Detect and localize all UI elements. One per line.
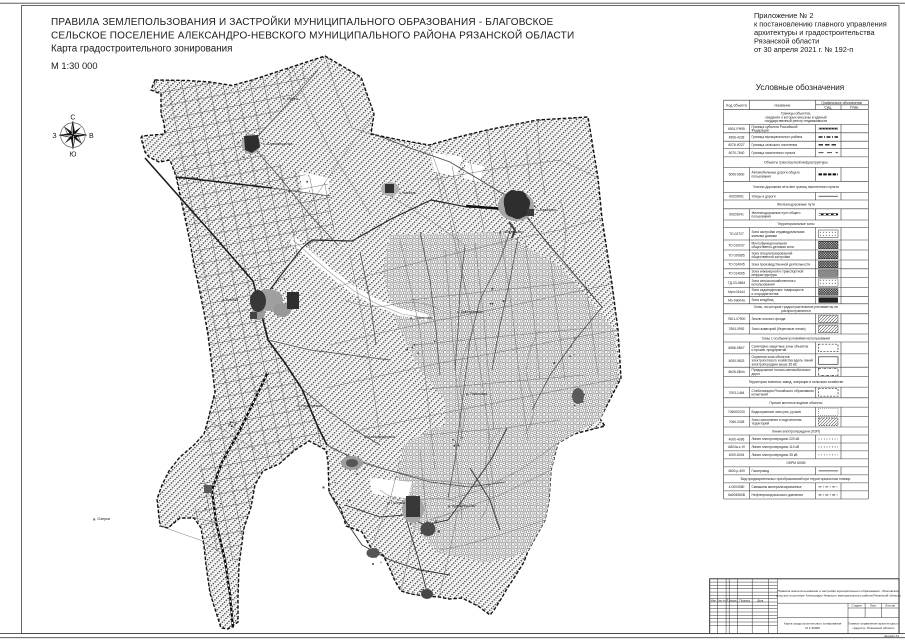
svg-text:ТО 014045: ТО 014045 bbox=[728, 263, 745, 267]
svg-text:п. Рубеж: п. Рубеж bbox=[283, 97, 299, 101]
svg-text:д. Зимарово: д. Зимарово bbox=[410, 316, 432, 320]
svg-text:6566-9В07: 6566-9В07 bbox=[728, 346, 744, 350]
svg-text:Граница муниципального района: Граница муниципального района bbox=[752, 135, 803, 139]
svg-text:использования: использования bbox=[752, 283, 775, 287]
svg-text:государственный реестр недвижи: государственный реестр недвижимости bbox=[765, 119, 828, 123]
svg-text:Вид предварительных преобразов: Вид предварительных преобразований при т… bbox=[741, 477, 852, 481]
svg-text:д. Павловка: д. Павловка bbox=[466, 392, 488, 396]
svg-text:Мрн-04444: Мрн-04444 bbox=[728, 290, 745, 294]
svg-text:Газопровод: Газопровод bbox=[752, 469, 770, 473]
svg-text:д. Гусевка: д. Гусевка bbox=[387, 501, 406, 505]
svg-text:Стадия: Стадия bbox=[851, 604, 862, 608]
svg-text:Сущ.: Сущ. bbox=[824, 105, 832, 109]
svg-text:с. Александровка: с. Александровка bbox=[364, 435, 396, 439]
svg-text:Железнодорожные пути: Железнодорожные пути bbox=[777, 203, 815, 207]
svg-text:ТО 014065: ТО 014065 bbox=[728, 271, 745, 275]
svg-text:ТО-02727: ТО-02727 bbox=[729, 232, 744, 236]
svg-text:Граница населенного пункта: Граница населенного пункта bbox=[752, 151, 796, 155]
svg-text:инфраструктуры: инфраструктуры bbox=[752, 273, 778, 277]
svg-text:Главное управление архитектуры: Главное управление архитектуры и bbox=[848, 622, 899, 626]
svg-text:Зоны с особыми условиями испол: Зоны с особыми условиями использования bbox=[762, 336, 831, 340]
svg-text:СЕЛЬСКОЕ ПОСЕЛЕНИЕ АЛЕКСАНДРО-: СЕЛЬСКОЕ ПОСЕЛЕНИЕ АЛЕКСАНДРО-НЕВСКОГО М… bbox=[51, 29, 574, 42]
svg-text:План.: План. bbox=[850, 105, 859, 109]
svg-text:Код объекта: Код объекта bbox=[726, 104, 747, 108]
svg-text:60203041: 60203041 bbox=[729, 213, 744, 217]
svg-text:Подпись: Подпись bbox=[739, 598, 750, 602]
svg-text:6000-9823: 6000-9823 bbox=[729, 359, 745, 363]
svg-text:6626-5В4н: 6626-5В4н bbox=[728, 370, 744, 374]
svg-text:Улично-дорожная сеть вне грани: Улично-дорожная сеть вне границ населенн… bbox=[753, 185, 839, 189]
svg-text:Ю: Ю bbox=[69, 152, 76, 159]
svg-text:6070-7640: 6070-7640 bbox=[729, 151, 745, 155]
svg-text:Придорожные полосы автомобильн: Придорожные полосы автомобильных bbox=[752, 368, 811, 372]
svg-text:7601-07900: 7601-07900 bbox=[728, 317, 746, 321]
svg-text:7003-1464: 7003-1464 bbox=[729, 391, 745, 395]
svg-text:Название: Название bbox=[774, 104, 790, 108]
svg-text:общественно-деловая зона: общественно-деловая зона bbox=[752, 245, 794, 249]
svg-text:4600-р-400: 4600-р-400 bbox=[728, 469, 745, 473]
svg-text:Объекты транспортной инфрастру: Объекты транспортной инфраструктуры bbox=[764, 161, 828, 165]
svg-text:пользования: пользования bbox=[752, 174, 772, 178]
svg-text:жилыми домами: жилыми домами bbox=[752, 234, 777, 238]
svg-text:и произв. предприятий: и произв. предприятий bbox=[752, 348, 787, 352]
svg-text:Кол.уч.: Кол.уч. bbox=[717, 598, 726, 602]
svg-text:4506-4228: 4506-4228 bbox=[729, 135, 745, 139]
svg-text:Правила землепользования и зас: Правила землепользования и застройки мун… bbox=[778, 589, 899, 593]
svg-text:Территориальные зоны: Территориальные зоны bbox=[777, 222, 815, 226]
svg-text:4-0004080: 4-0004080 bbox=[729, 485, 745, 489]
svg-text:д. Крещено-Гаи: д. Крещено-Гаи bbox=[448, 504, 476, 508]
svg-text:формат А1: формат А1 bbox=[884, 634, 900, 638]
svg-text:6076-Н227: 6076-Н227 bbox=[728, 143, 744, 147]
svg-text:Карта градостроительного зонир: Карта градостроительного зонирования bbox=[784, 622, 842, 626]
svg-text:с. Благое: с. Благое bbox=[222, 298, 238, 302]
svg-text:от 30 апреля 2021 г. № 192-п: от 30 апреля 2021 г. № 192-п bbox=[754, 45, 853, 54]
svg-text:пользования: пользования bbox=[752, 214, 772, 218]
svg-text:6501-РФ95: 6501-РФ95 bbox=[728, 127, 745, 131]
svg-text:7066-3428: 7066-3428 bbox=[729, 420, 745, 424]
svg-text:с. Канино: с. Канино bbox=[399, 191, 416, 195]
svg-text:Скважины минерализированные: Скважины минерализированные bbox=[752, 485, 802, 489]
svg-text:Зона производственной деятельн: Зона производственной деятельности bbox=[752, 263, 811, 267]
svg-text:Водоохранные зоны рек, ручьев: Водоохранные зоны рек, ручьев bbox=[752, 410, 802, 414]
svg-text:территорий: территорий bbox=[752, 422, 770, 426]
svg-text:ТО 010037: ТО 010037 bbox=[728, 243, 745, 247]
svg-text:дорог: дорог bbox=[752, 372, 761, 376]
svg-text:Листов: Листов bbox=[885, 604, 895, 608]
svg-text:М 1:30 000: М 1:30 000 bbox=[51, 61, 98, 71]
svg-text:ОКРМ 600М: ОКРМ 600М bbox=[786, 461, 805, 465]
svg-text:7604-0992: 7604-0992 bbox=[729, 327, 745, 331]
svg-text:Дата: Дата bbox=[757, 598, 763, 602]
svg-text:д. Озерки: д. Озерки bbox=[93, 517, 110, 521]
svg-text:Нефтепровод высокого давления: Нефтепровод высокого давления bbox=[752, 493, 804, 497]
svg-text:Федерации: Федерации bbox=[752, 129, 769, 133]
svg-text:градостр. Рязанской области: градостр. Рязанской области bbox=[853, 626, 895, 630]
svg-text:Лист: Лист bbox=[870, 604, 877, 608]
svg-text:4000-4096: 4000-4096 bbox=[729, 437, 745, 441]
svg-text:Графическое обозначение: Графическое обозначение bbox=[822, 101, 863, 105]
svg-text:5006-0600: 5006-0600 bbox=[729, 173, 745, 177]
svg-text:д. Ленинка: д. Ленинка bbox=[179, 176, 199, 180]
svg-text:М 1:30000: М 1:30000 bbox=[805, 626, 820, 630]
svg-text:4000-6004: 4000-6004 bbox=[729, 453, 745, 457]
svg-text:Зоны акваторий (береговые лини: Зоны акваторий (береговые линии) bbox=[752, 327, 806, 331]
svg-text:с. Николаевка: с. Николаевка bbox=[297, 404, 323, 408]
svg-text:Условные обозначения: Условные обозначения bbox=[756, 83, 844, 92]
svg-text:Улицы и дороги: Улицы и дороги bbox=[752, 194, 776, 198]
svg-text:Карта градостроительного зонир: Карта градостроительного зонирования bbox=[51, 44, 232, 55]
svg-text:З: З bbox=[52, 133, 56, 140]
svg-text:электропередачи выше 35 кВ: электропередачи выше 35 кВ bbox=[752, 362, 798, 366]
svg-text:Земли лесного фонда: Земли лесного фонда bbox=[752, 317, 786, 321]
svg-text:Изм.: Изм. bbox=[711, 598, 717, 602]
svg-text:и огородничества: и огородничества bbox=[752, 292, 779, 296]
svg-text:испытаний: испытаний bbox=[752, 393, 769, 397]
svg-text:Прочие местные водные объекты: Прочие местные водные объекты bbox=[769, 401, 823, 405]
svg-text:Линия электропередачи 110 кВ: Линия электропередачи 110 кВ bbox=[752, 445, 800, 449]
svg-text:Территории военных завод, опер: Территории военных завод, операции в сел… bbox=[749, 380, 844, 384]
svg-text:6а004560В: 6а004560В bbox=[728, 493, 746, 497]
svg-text:Граница сельского поселения: Граница сельского поселения bbox=[752, 143, 798, 147]
svg-text:706000С00: 706000С00 bbox=[728, 410, 745, 414]
svg-text:А604а-с-т0: А604а-с-т0 bbox=[728, 445, 745, 449]
svg-text:с. Каширин: с. Каширин bbox=[536, 208, 556, 212]
svg-text:Мо-0а004а: Мо-0а004а bbox=[728, 298, 745, 302]
svg-text:Линии электропередачи (ЛЭП): Линии электропередачи (ЛЭП) bbox=[772, 429, 820, 433]
svg-text:сельское поселение Александро-: сельское поселение Александро-Невского м… bbox=[776, 594, 901, 598]
svg-text:ПРАВИЛА ЗЕМЛЕПОЛЬЗОВАНИЯ И ЗАС: ПРАВИЛА ЗЕМЛЕПОЛЬЗОВАНИЯ И ЗАСТРОЙКИ МУН… bbox=[51, 15, 554, 28]
svg-text:ТО 020685: ТО 020685 bbox=[728, 253, 745, 257]
svg-text:распространяются: распространяются bbox=[781, 309, 810, 313]
svg-text:ТД-03-0864: ТД-03-0864 bbox=[728, 281, 746, 285]
svg-text:д. Михалково: д. Михалково bbox=[499, 230, 523, 234]
svg-text:Линия электропередачи 35 кВ: Линия электропередачи 35 кВ bbox=[752, 453, 799, 457]
svg-text:с. Благовещенка: с. Благовещенка bbox=[263, 142, 293, 146]
svg-text:С: С bbox=[70, 115, 75, 122]
svg-text:общественной застройки: общественной застройки bbox=[752, 255, 791, 259]
svg-text:Линия электропередачи 220 кВ: Линия электропередачи 220 кВ bbox=[752, 437, 801, 441]
svg-text:с. Дмитриевка: с. Дмитриевка bbox=[457, 310, 483, 314]
svg-text:Зона кладбищ: Зона кладбищ bbox=[752, 298, 774, 302]
svg-text:№док.: №док. bbox=[729, 599, 737, 602]
svg-text:В: В bbox=[89, 133, 94, 140]
svg-text:60203061: 60203061 bbox=[729, 195, 744, 199]
